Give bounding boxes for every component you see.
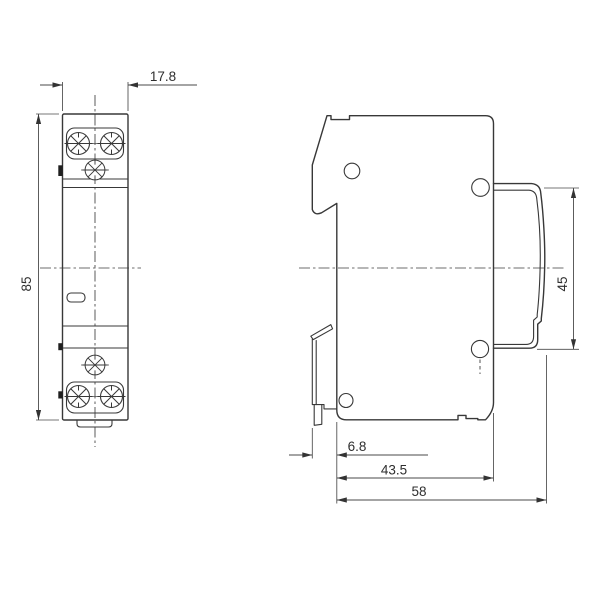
front-bottom-tab xyxy=(77,420,112,427)
dim-arrow xyxy=(302,452,312,457)
dim-label-front-width: 17.8 xyxy=(150,69,176,84)
front-view xyxy=(40,95,141,447)
dim-arrow xyxy=(337,497,347,502)
technical-drawing: 17.8 85 45 6.8 43.5 xyxy=(0,0,600,600)
dim-arrow xyxy=(36,410,41,420)
dim-label-body-depth: 43.5 xyxy=(381,463,407,478)
drawing-svg: 17.8 85 45 6.8 43.5 xyxy=(0,0,600,600)
side-view xyxy=(299,116,566,426)
dim-front-width: 17.8 xyxy=(40,69,197,111)
dim-arrow xyxy=(36,114,41,124)
din-clip-wedge xyxy=(311,325,333,340)
dim-label-total-depth: 58 xyxy=(411,484,426,499)
dim-arrow xyxy=(484,475,494,480)
dim-label-clip-offset: 6.8 xyxy=(348,439,367,454)
dim-arrow xyxy=(53,82,63,87)
dim-arrow xyxy=(537,497,547,502)
dim-arrow xyxy=(571,188,576,198)
dim-label-front-height: 85 xyxy=(19,276,34,291)
dim-front-height: 85 xyxy=(19,114,59,420)
side-nub xyxy=(58,165,62,176)
dim-arrow xyxy=(337,475,347,480)
dim-arrow xyxy=(128,82,138,87)
side-nub xyxy=(58,391,62,398)
dim-arrow xyxy=(571,339,576,349)
dim-clip-offset: 6.8 xyxy=(289,422,428,504)
dim-label-rail-recess: 45 xyxy=(555,276,570,291)
side-nub xyxy=(58,343,62,350)
dim-arrow xyxy=(337,452,347,457)
rear-bracket-outer xyxy=(494,184,545,349)
rear-bracket-inner xyxy=(494,190,541,344)
din-clip-pin xyxy=(314,405,322,426)
